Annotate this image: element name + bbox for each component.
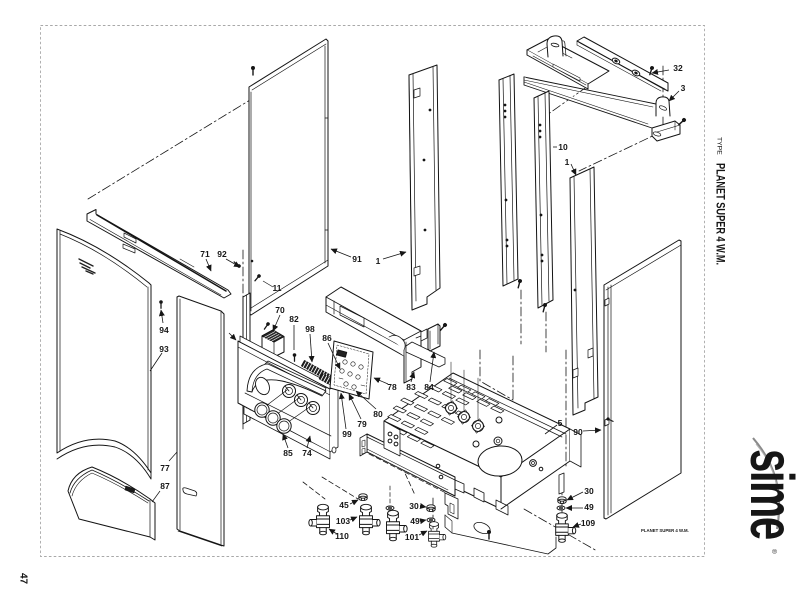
svg-text:sime: sime [737, 449, 800, 539]
svg-text:®: ® [770, 549, 778, 554]
svg-text:70: 70 [275, 305, 285, 315]
svg-text:82: 82 [289, 314, 299, 324]
svg-text:91: 91 [352, 254, 362, 264]
svg-text:101: 101 [405, 532, 419, 542]
svg-text:PLANET SUPER 4 W.M.: PLANET SUPER 4 W.M. [641, 528, 689, 533]
svg-text:92: 92 [217, 249, 227, 259]
svg-text:30: 30 [409, 501, 419, 511]
svg-text:83: 83 [406, 382, 416, 392]
svg-text:1: 1 [376, 256, 381, 266]
svg-text:77: 77 [160, 463, 170, 473]
svg-text:103: 103 [336, 516, 350, 526]
svg-text:74: 74 [302, 448, 312, 458]
svg-text:85: 85 [283, 448, 293, 458]
svg-text:10: 10 [558, 142, 568, 152]
svg-text:93: 93 [159, 344, 169, 354]
svg-text:84: 84 [424, 382, 434, 392]
svg-text:78: 78 [387, 382, 397, 392]
svg-text:49: 49 [584, 502, 594, 512]
svg-text:109: 109 [581, 518, 595, 528]
svg-text:5: 5 [558, 418, 563, 428]
svg-text:99: 99 [342, 429, 352, 439]
svg-text:98: 98 [305, 324, 315, 334]
svg-text:71: 71 [200, 249, 210, 259]
svg-text:80: 80 [373, 409, 383, 419]
svg-text:90: 90 [573, 427, 583, 437]
svg-text:PLANET SUPER 4 W.M.: PLANET SUPER 4 W.M. [713, 163, 726, 265]
svg-text:11: 11 [273, 283, 282, 293]
svg-text:79: 79 [357, 419, 367, 429]
svg-text:49: 49 [410, 516, 420, 526]
svg-text:TYPE: TYPE [716, 137, 723, 155]
svg-text:94: 94 [159, 325, 169, 335]
svg-text:32: 32 [673, 63, 683, 73]
svg-text:30: 30 [584, 486, 594, 496]
svg-text:47: 47 [18, 573, 29, 585]
svg-text:3: 3 [681, 83, 686, 93]
svg-text:1: 1 [565, 157, 570, 167]
svg-text:86: 86 [322, 333, 332, 343]
svg-text:110: 110 [335, 531, 349, 541]
svg-text:87: 87 [160, 481, 170, 491]
svg-text:45: 45 [339, 500, 349, 510]
